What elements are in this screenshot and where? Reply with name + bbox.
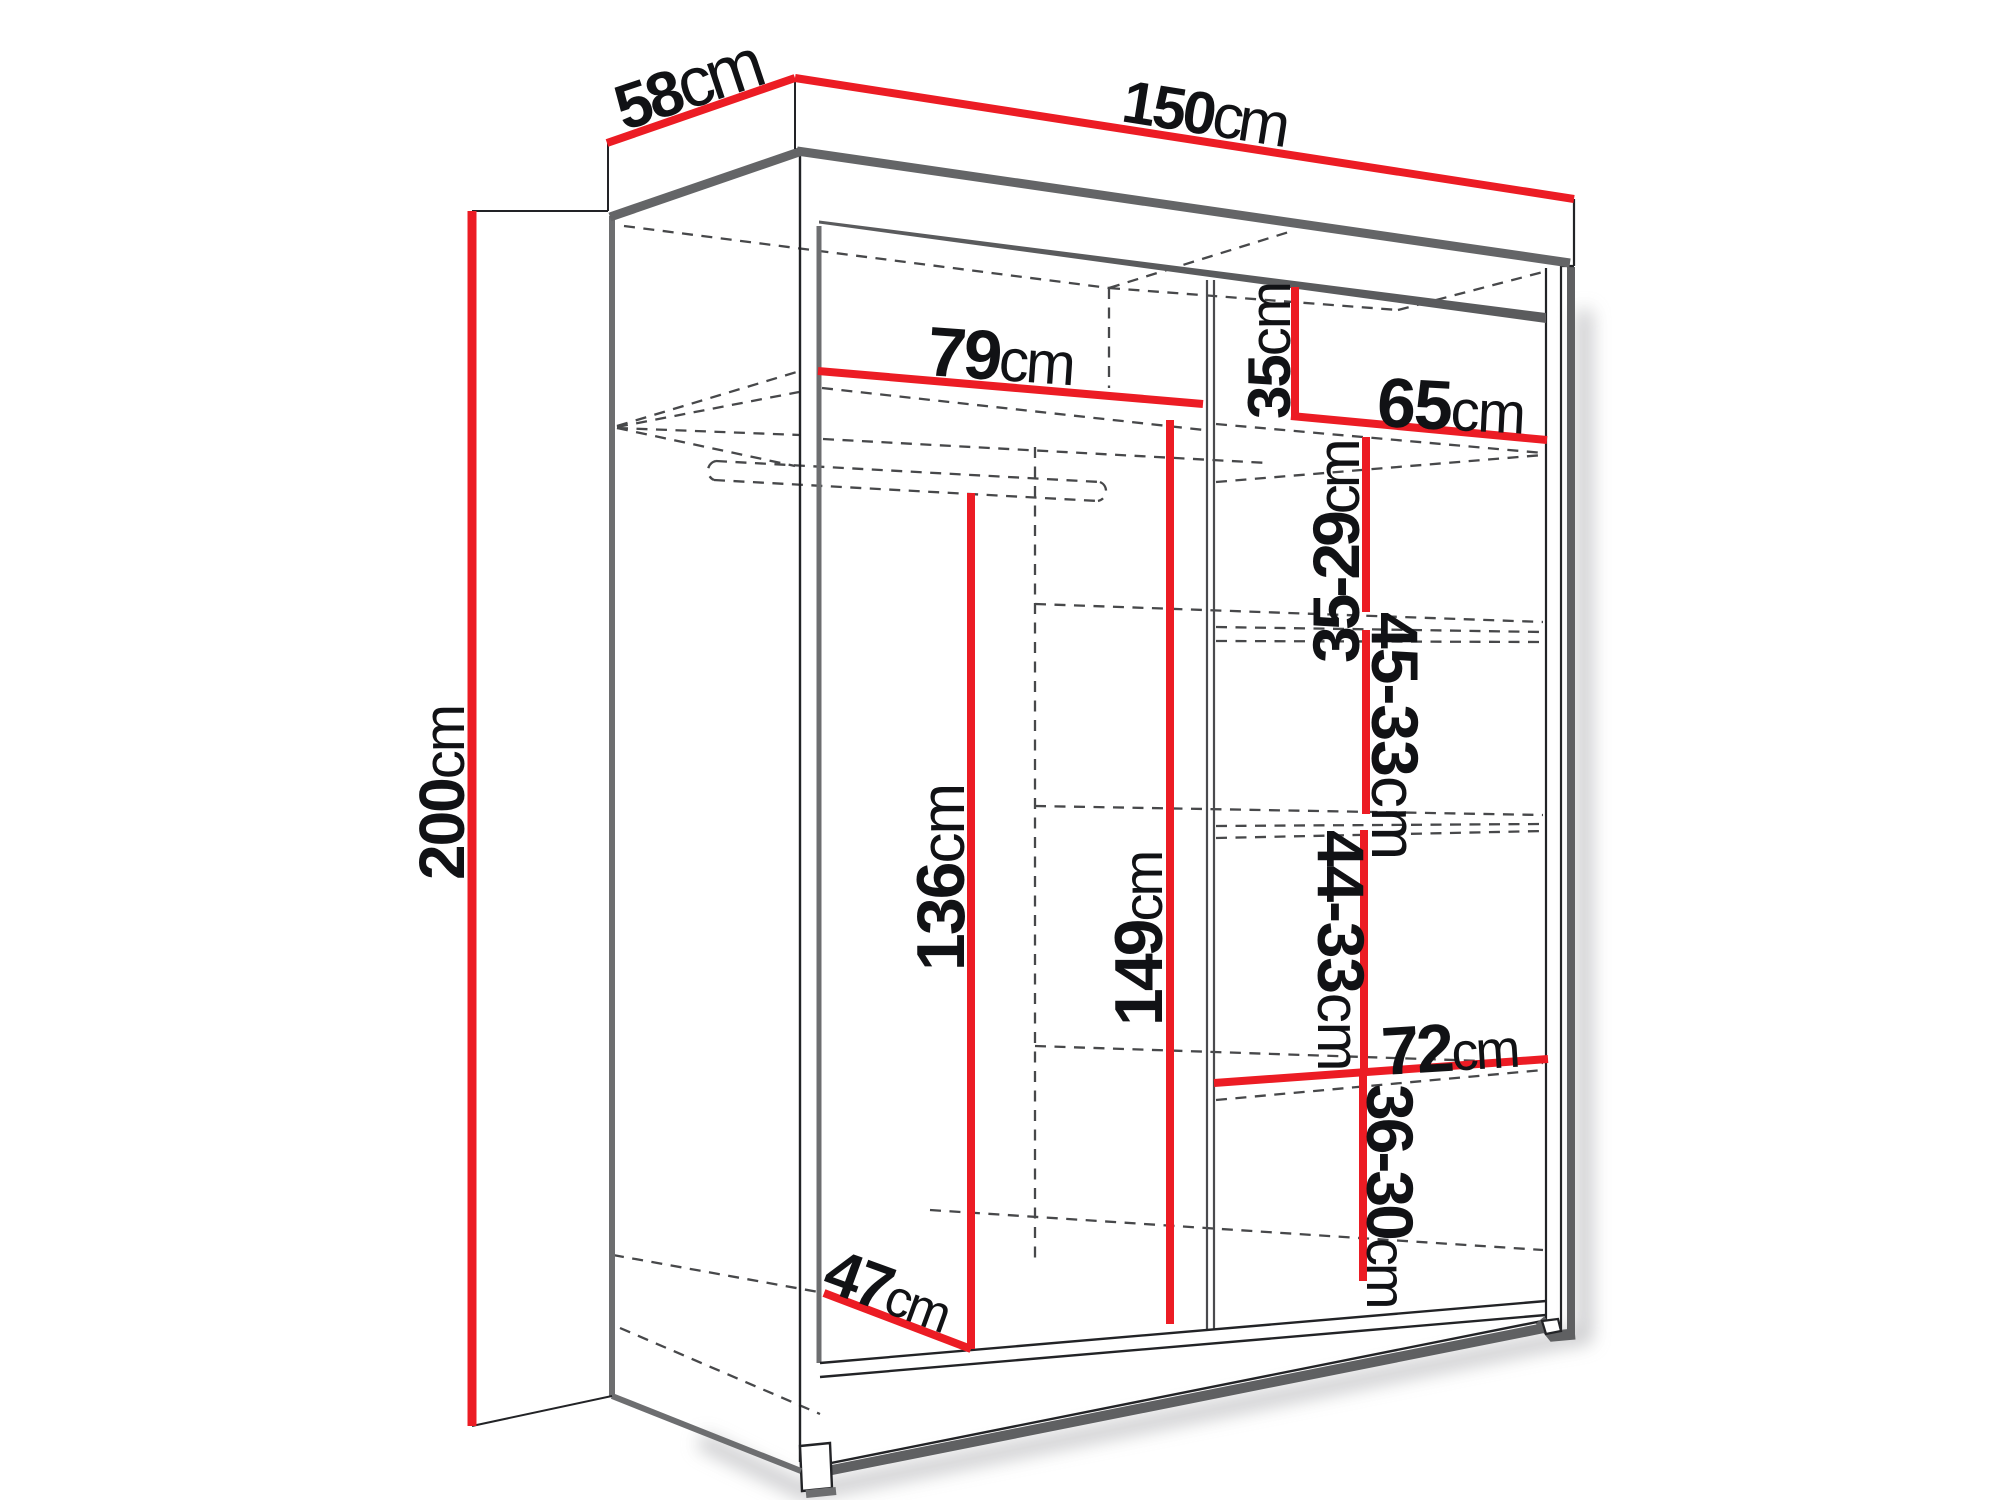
svg-text:35cm: 35cm xyxy=(1236,283,1303,419)
svg-text:45-33cm: 45-33cm xyxy=(1358,612,1432,859)
svg-text:136cm: 136cm xyxy=(903,785,979,971)
svg-text:200cm: 200cm xyxy=(406,706,478,880)
svg-text:149cm: 149cm xyxy=(1101,853,1177,1026)
svg-text:44-33cm: 44-33cm xyxy=(1304,830,1378,1070)
svg-text:36-30cm: 36-30cm xyxy=(1353,1084,1427,1306)
